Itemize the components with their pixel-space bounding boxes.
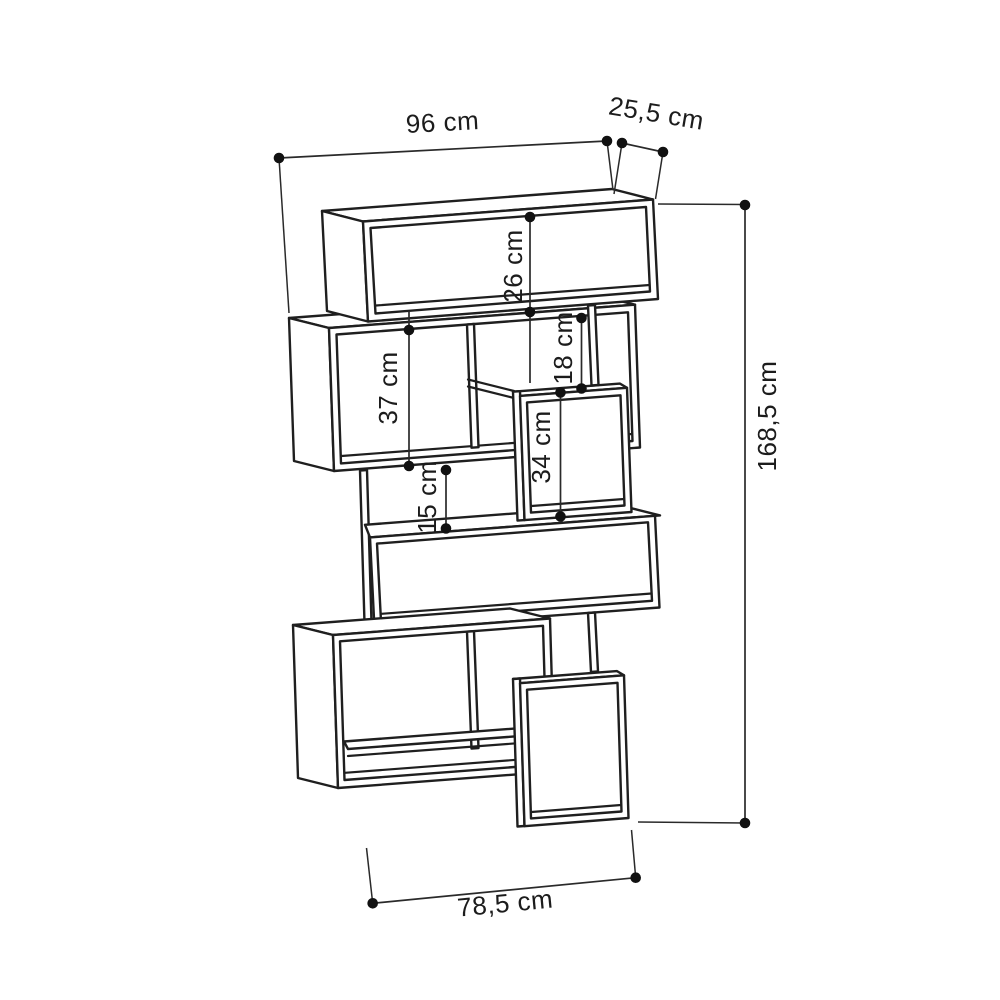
page-background	[0, 0, 1000, 1000]
dim1685-dot-bottom	[740, 818, 751, 829]
dim15-dot-top	[441, 465, 452, 476]
level1-left-face	[322, 211, 368, 322]
dim37-label: 37 cm	[373, 351, 403, 424]
dim1685-dot-top	[740, 200, 751, 211]
dim1685-extension-bottom	[638, 822, 745, 823]
dim96-dot-right	[602, 136, 613, 147]
dim1685-label: 168,5 cm	[752, 361, 782, 472]
bookshelf-dimension-diagram: 96 cm 25,5 cm 26 cm 37 cm	[0, 0, 1000, 1000]
dim785-dot-left	[367, 898, 378, 909]
lower-right-post	[588, 613, 598, 673]
boxBR-opening	[527, 683, 622, 819]
dim15-label: 15 cm	[412, 460, 442, 533]
dim96-label: 96 cm	[405, 105, 480, 139]
dim18-label: 18 cm	[548, 311, 578, 384]
dim34-dot-bottom	[555, 511, 566, 522]
dimension-middle-gap: 15 cm	[412, 460, 451, 533]
level2-left-face	[289, 318, 334, 471]
dim34-dot-top	[555, 387, 566, 398]
dim255-dot-right	[658, 147, 669, 158]
diagram-canvas: 96 cm 25,5 cm 26 cm 37 cm	[0, 0, 1000, 1000]
shelf-box-level1	[322, 189, 658, 322]
dim15-dot-bottom	[441, 523, 452, 534]
dim26-dot-top	[525, 212, 536, 223]
dim26-label: 26 cm	[498, 229, 528, 302]
dim37-dot-top	[404, 325, 415, 336]
shelf-box-bottom-right	[513, 671, 629, 826]
dim96-dot-left	[274, 153, 285, 164]
dim1685-extension-top	[658, 204, 745, 205]
level5-left-face	[293, 625, 338, 788]
dimension-upper-right-gap: 18 cm	[548, 311, 587, 393]
dim255-dot-left	[617, 138, 628, 149]
dim26-dot-bottom	[525, 307, 536, 318]
dim785-dot-right	[630, 872, 641, 883]
dim34-label: 34 cm	[526, 410, 556, 483]
